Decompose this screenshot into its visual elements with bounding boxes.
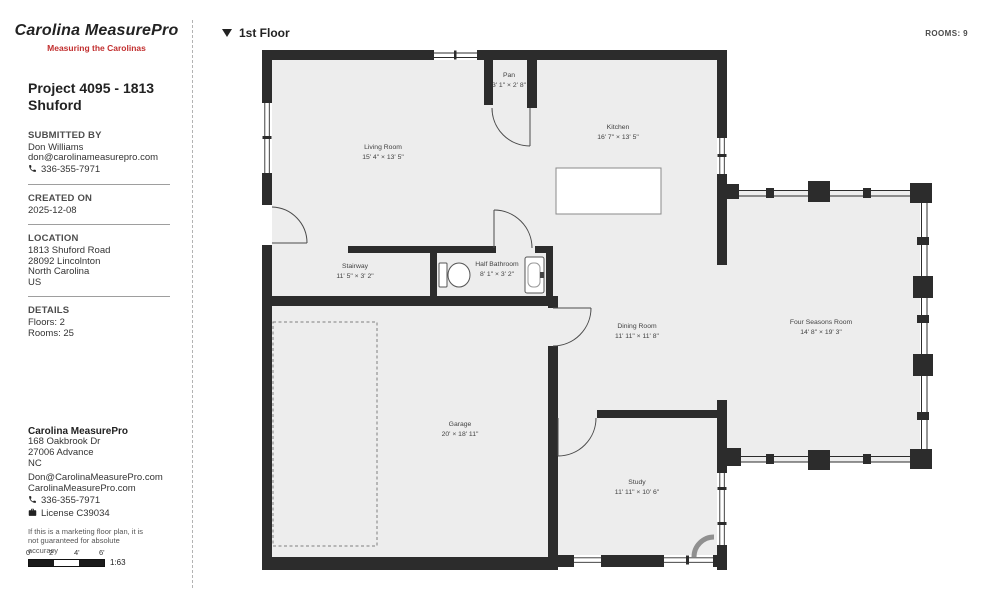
- company-footer: Carolina MeasurePro 168 Oakbrook Dr 2700…: [28, 426, 188, 521]
- scale-bar-strip: [28, 559, 105, 567]
- scale-tick-2: 4': [74, 548, 80, 557]
- svg-text:11' 5" × 3' 2": 11' 5" × 3' 2": [336, 273, 374, 280]
- scale-ticks: 0' 2' 4' 6': [28, 548, 178, 557]
- phone-icon: [28, 164, 37, 177]
- submitted-by-phone: 336-355-7971: [41, 165, 100, 176]
- svg-text:16' 7" × 13' 5": 16' 7" × 13' 5": [597, 134, 639, 141]
- toilet-icon: [439, 263, 470, 287]
- divider: [28, 296, 170, 297]
- brand-logo: Carolina MeasurePro: [0, 22, 193, 40]
- project-info: Project 4095 - 1813 Shuford SUBMITTED BY…: [28, 80, 178, 340]
- submitted-by-label: SUBMITTED BY: [28, 130, 178, 141]
- created-on-date: 2025-12-08: [28, 206, 178, 217]
- svg-text:Stairway: Stairway: [342, 263, 369, 270]
- svg-text:20' × 18' 11": 20' × 18' 11": [442, 431, 479, 438]
- company-license: License C39034: [41, 509, 110, 520]
- company-license-row: License C39034: [28, 508, 188, 521]
- location-address: 1813 Shuford Road: [28, 246, 178, 257]
- details-rooms: Rooms: 25: [28, 329, 178, 340]
- svg-text:11' 11" × 11' 8": 11' 11" × 11' 8": [615, 333, 659, 340]
- submitted-by-phone-row: 336-355-7971: [28, 164, 178, 177]
- svg-text:11' 11" × 10' 6": 11' 11" × 10' 6": [615, 489, 660, 496]
- brand-tagline: Measuring the Carolinas: [0, 43, 193, 53]
- sidebar-divider: [192, 20, 193, 588]
- phone-icon: [28, 495, 37, 508]
- company-phone-row: 336-355-7971: [28, 495, 188, 508]
- svg-text:Kitchen: Kitchen: [607, 124, 630, 131]
- sidebar: Carolina MeasurePro Measuring the Caroli…: [0, 0, 193, 606]
- project-title: Project 4095 - 1813 Shuford: [28, 80, 178, 114]
- kitchen-island: [556, 168, 661, 214]
- company-address3: NC: [28, 459, 188, 470]
- svg-text:Half Bathroom: Half Bathroom: [475, 261, 519, 268]
- scale-ratio: 1:63: [110, 558, 126, 567]
- company-website: CarolinaMeasurePro.com: [28, 484, 188, 495]
- scale-tick-1: 2': [49, 548, 55, 557]
- svg-text:Study: Study: [628, 479, 646, 486]
- divider: [28, 184, 170, 185]
- company-phone: 336-355-7971: [41, 496, 100, 507]
- briefcase-icon: [28, 508, 37, 521]
- svg-text:8' 1" × 3' 2": 8' 1" × 3' 2": [480, 271, 515, 278]
- svg-text:Dining Room: Dining Room: [617, 323, 657, 330]
- divider: [28, 224, 170, 225]
- svg-text:Garage: Garage: [449, 421, 472, 428]
- svg-text:Four Seasons Room: Four Seasons Room: [790, 319, 853, 326]
- scale-bar: 0' 2' 4' 6' 1:63: [28, 548, 178, 567]
- company-address2: 27006 Advance: [28, 448, 188, 459]
- scale-tick-3: 6': [99, 548, 105, 557]
- svg-text:Living Room: Living Room: [364, 144, 402, 151]
- floor-plan-svg: Living Room 15' 4" × 13' 5" Pan 3' 1" × …: [200, 15, 1000, 600]
- svg-text:15' 4" × 13' 5": 15' 4" × 13' 5": [362, 154, 404, 161]
- svg-text:14' 8" × 19' 3": 14' 8" × 19' 3": [800, 329, 842, 336]
- svg-text:3' 1" × 2' 8": 3' 1" × 2' 8": [492, 82, 527, 89]
- floor-plan: Living Room 15' 4" × 13' 5" Pan 3' 1" × …: [200, 15, 1000, 600]
- sink-icon: [525, 257, 544, 293]
- brand-block: Carolina MeasurePro Measuring the Caroli…: [0, 22, 193, 53]
- details-label: DETAILS: [28, 305, 178, 316]
- svg-text:Pan: Pan: [503, 72, 515, 79]
- location-label: LOCATION: [28, 233, 178, 244]
- location-country: US: [28, 278, 178, 289]
- submitted-by-email: don@carolinameasurepro.com: [28, 153, 178, 164]
- created-on-label: CREATED ON: [28, 193, 178, 204]
- floor-fill: [272, 60, 920, 560]
- scale-tick-0: 0': [26, 548, 32, 557]
- location-state: North Carolina: [28, 267, 178, 278]
